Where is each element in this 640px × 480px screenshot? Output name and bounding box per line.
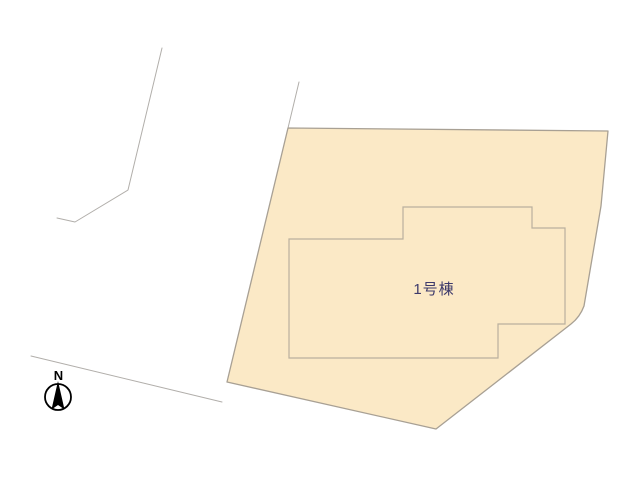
compass-north-label: N (54, 368, 63, 383)
north-compass: N (45, 368, 71, 410)
site-plan-canvas: 1号棟 N (0, 0, 640, 480)
building-label: 1号棟 (413, 281, 454, 298)
site-plan-drawing: 1号棟 N (0, 0, 640, 480)
boundary-line-upper-right (288, 82, 299, 128)
boundary-line-left-parcel (57, 48, 162, 222)
